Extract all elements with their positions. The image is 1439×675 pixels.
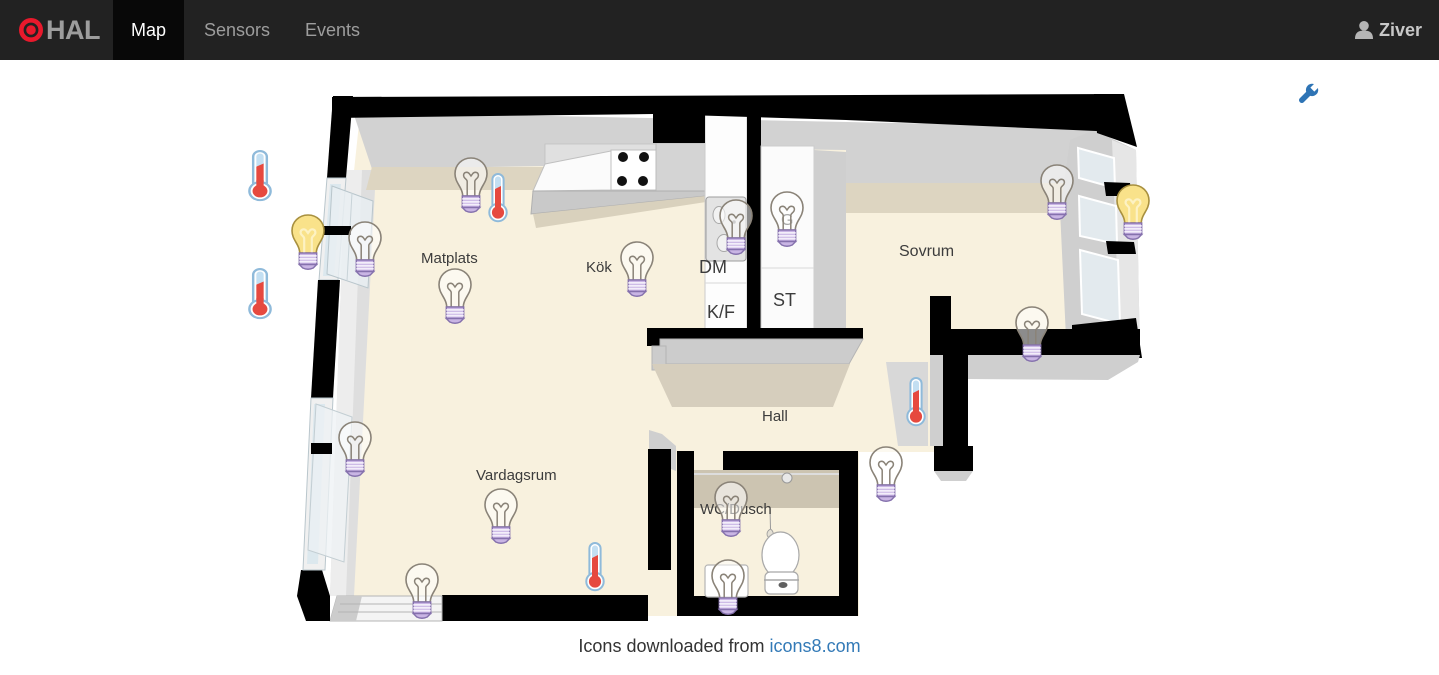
svg-text:Kök: Kök bbox=[586, 259, 612, 276]
svg-text:Matplats: Matplats bbox=[421, 250, 478, 267]
svg-text:Vardagsrum: Vardagsrum bbox=[476, 467, 557, 484]
svg-text:DM: DM bbox=[699, 257, 727, 277]
svg-text:K/F: K/F bbox=[707, 302, 735, 322]
svg-text:Sovrum: Sovrum bbox=[899, 243, 954, 260]
svg-text:Hall: Hall bbox=[762, 408, 788, 425]
svg-text:ST: ST bbox=[773, 290, 796, 310]
